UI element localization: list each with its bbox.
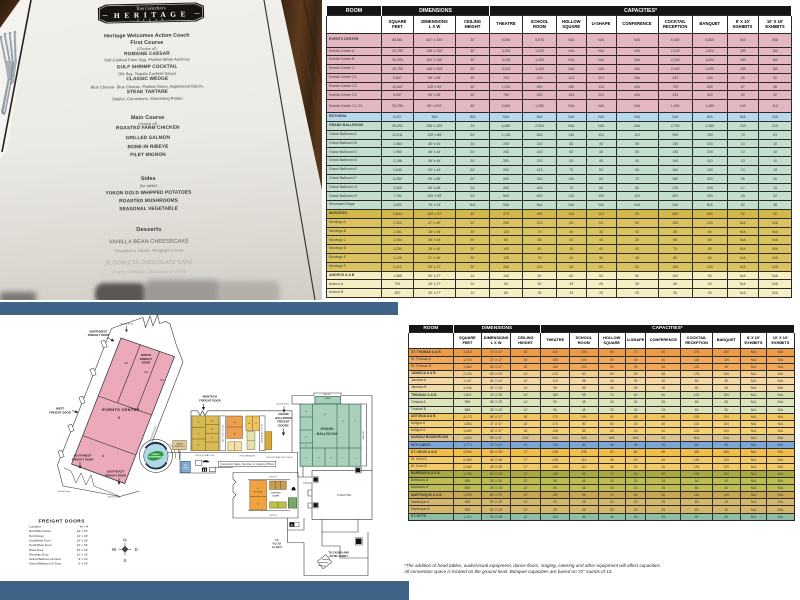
svg-text:SERVICE: SERVICE (269, 476, 278, 478)
svg-text:Vehicle Entry: Vehicle Entry (58, 490, 72, 493)
svg-text:CALYPSO: CALYPSO (271, 492, 281, 495)
svg-text:FREIGHT DOOR: FREIGHT DOOR (88, 333, 109, 337)
svg-text:STAGE: STAGE (325, 397, 332, 400)
svg-text:J: J (355, 458, 356, 460)
svg-text:9' x 14': 9' x 14' (78, 557, 88, 561)
svg-text:SouthWest Door: SouthWest Door (29, 543, 52, 547)
svg-text:PROMENADE: PROMENADE (240, 455, 256, 458)
svg-text:THEATRE: THEATRE (337, 493, 352, 497)
svg-text:16' x 16': 16' x 16' (77, 548, 89, 552)
svg-text:ST. CROIX: ST. CROIX (254, 491, 264, 493)
svg-text:SERVICE: SERVICE (269, 515, 278, 517)
svg-text:C1: C1 (160, 378, 164, 382)
svg-text:REGISTRATION DESK: REGISTRATION DESK (267, 456, 294, 459)
svg-text:S: S (291, 523, 293, 527)
svg-text:Convention Sales, Services, &: Convention Sales, Services, & Catering O… (220, 462, 275, 466)
svg-text:W: W (112, 547, 117, 552)
svg-text:GALLERY: GALLERY (362, 430, 365, 440)
svg-text:S: S (123, 558, 126, 563)
svg-text:Grand Ballroom D Door: Grand Ballroom D Door (29, 562, 61, 566)
svg-text:12' x 16': 12' x 16' (77, 552, 89, 556)
svg-text:& LANAI: & LANAI (272, 546, 282, 549)
svg-text:NorthWest Door: NorthWest Door (29, 529, 51, 533)
svg-text:12' x 16': 12' x 16' (77, 543, 89, 547)
svg-text:FREIGHT DOOR: FREIGHT DOOR (199, 398, 220, 402)
svg-text:12' x 16': 12' x 16' (77, 534, 89, 538)
svg-text:FREIGHT DOOR: FREIGHT DOOR (72, 457, 93, 461)
svg-text:C2: C2 (144, 370, 148, 374)
svg-text:EVENTS CENTER: EVENTS CENTER (102, 407, 139, 412)
svg-text:Montego Door: Montego Door (29, 552, 49, 556)
svg-text:9' x 14': 9' x 14' (78, 562, 88, 566)
svg-text:CARIBBEAN COURT: CARIBBEAN COURT (261, 423, 264, 444)
svg-text:FREIGHT DOOR: FREIGHT DOOR (105, 473, 126, 477)
svg-text:FREIGHT DOOR: FREIGHT DOOR (49, 410, 70, 414)
svg-text:N: N (123, 538, 127, 543)
svg-text:COURT: COURT (272, 495, 280, 497)
svg-text:23' x 18': 23' x 18' (77, 539, 89, 543)
svg-text:Grand Ballroom E Door: Grand Ballroom E Door (29, 557, 61, 561)
svg-text:GALLERY: GALLERY (323, 393, 332, 396)
svg-text:North Door: North Door (29, 534, 44, 538)
svg-text:Vehicle Entry: Vehicle Entry (276, 402, 290, 405)
svg-text:Vehicle Entry: Vehicle Entry (120, 323, 134, 326)
svg-text:LARGO: LARGO (183, 467, 190, 470)
svg-text:C3: C3 (124, 361, 128, 365)
svg-text:BALLROOM: BALLROOM (317, 432, 338, 436)
svg-text:Vehicle Entry: Vehicle Entry (108, 496, 122, 499)
svg-text:TO CASINO AND: TO CASINO AND (328, 551, 349, 555)
svg-text:SouthEast Door: SouthEast Door (29, 539, 51, 543)
svg-text:GRAND: GRAND (320, 427, 334, 431)
svg-text:DOOR: DOOR (142, 361, 150, 365)
svg-text:REGISTRATION: REGISTRATION (196, 454, 215, 457)
svg-text:HOTEL LOBBY: HOTEL LOBBY (329, 554, 348, 558)
svg-text:DOORS: DOORS (278, 423, 288, 427)
svg-text:FREIGHT DOORS: FREIGHT DOORS (39, 519, 86, 525)
svg-text:LATITUDE COURT: LATITUDE COURT (221, 424, 224, 443)
svg-text:W x H: W x H (80, 525, 88, 529)
svg-text:12' x 15': 12' x 15' (77, 529, 89, 533)
svg-text:E: E (135, 547, 138, 552)
svg-text:ENTERTAINMENT: ENTERTAINMENT (148, 455, 163, 458)
svg-text:Location: Location (29, 525, 41, 529)
svg-text:West Door: West Door (29, 548, 44, 552)
